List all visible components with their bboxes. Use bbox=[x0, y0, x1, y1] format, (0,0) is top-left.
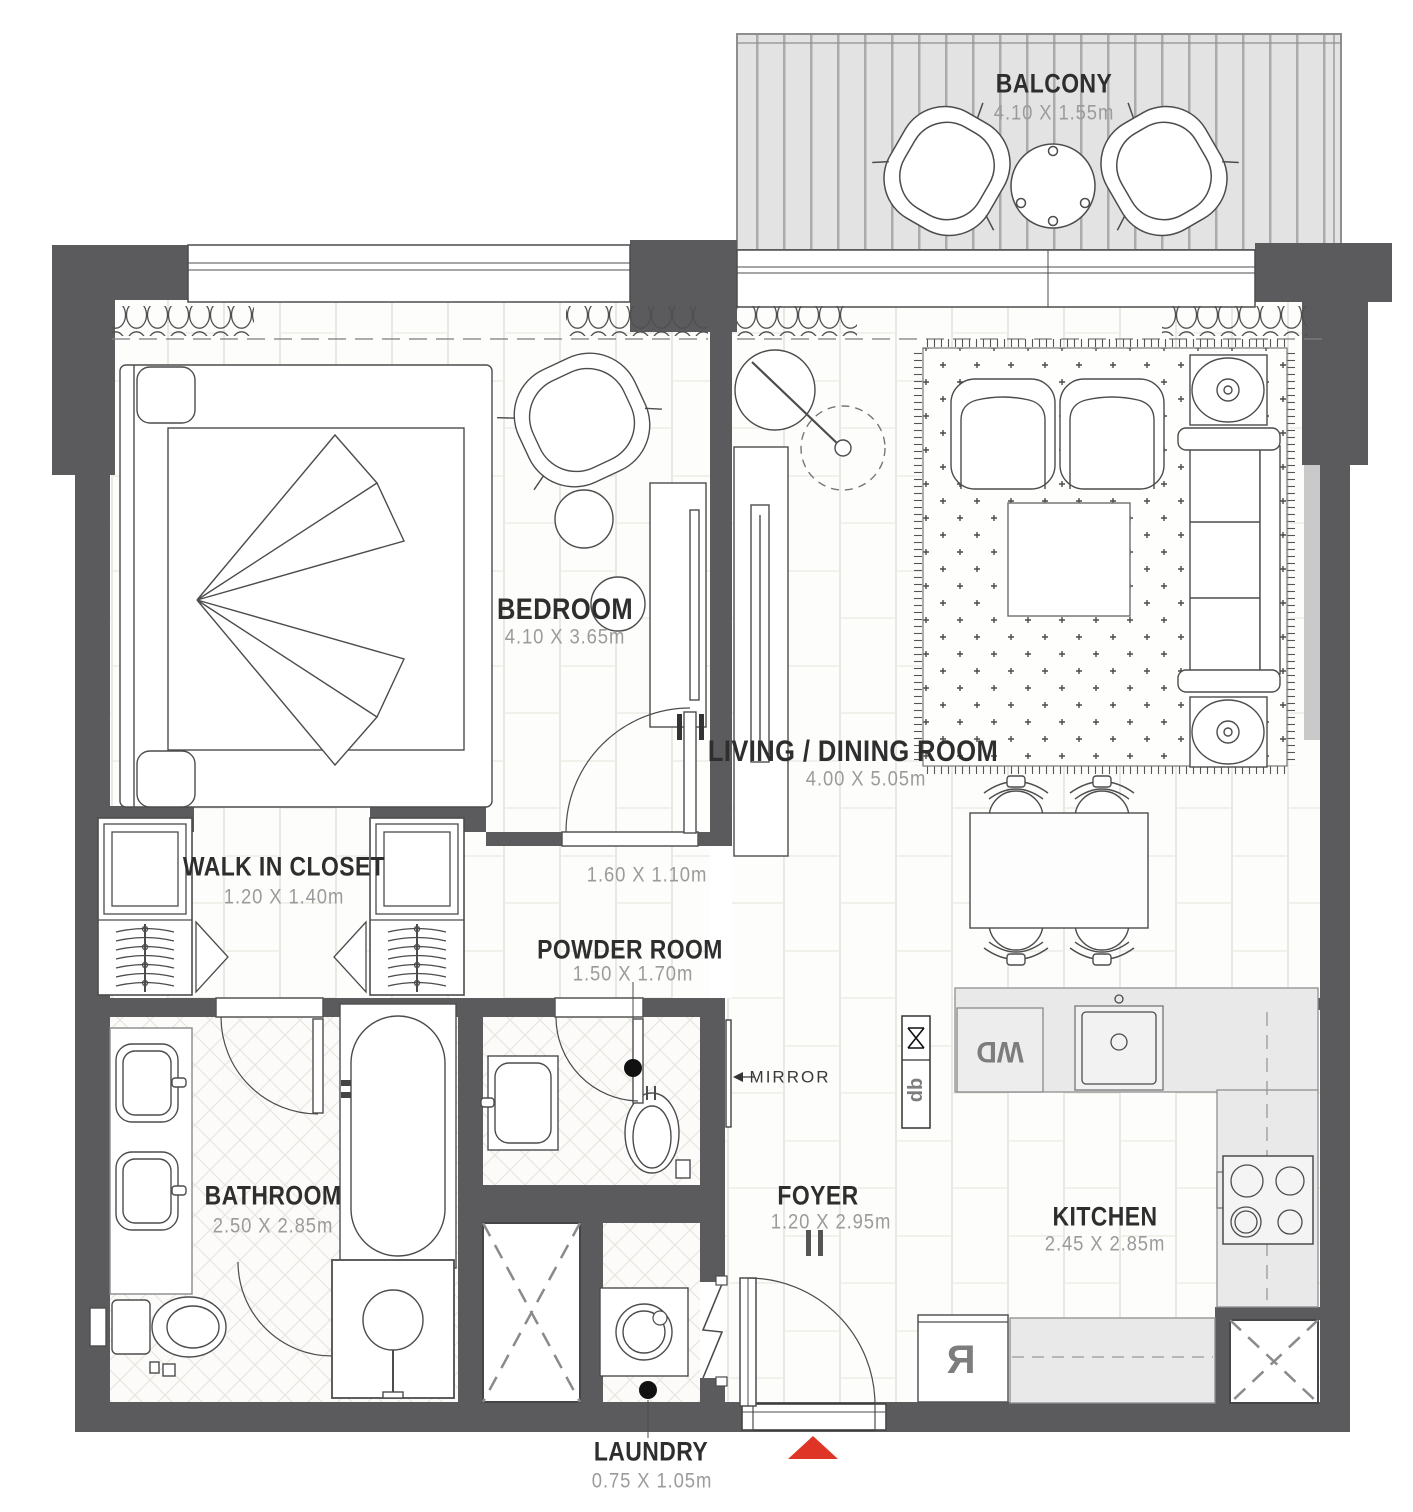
mirror bbox=[726, 1020, 731, 1127]
floor-drain bbox=[639, 1381, 657, 1399]
distribution-board bbox=[902, 1016, 930, 1128]
distribution-board-label: db bbox=[905, 1078, 927, 1102]
bedroom-window bbox=[188, 245, 630, 302]
door-leaf bbox=[684, 712, 696, 833]
entrance-sill bbox=[742, 1404, 886, 1430]
mirror-label: MIRROR bbox=[750, 1068, 831, 1087]
kitchen-dims: 2.45 X 2.85m bbox=[1045, 1232, 1165, 1255]
foyer-label: FOYER bbox=[777, 1181, 858, 1211]
powder-room-label: POWDER ROOM bbox=[537, 935, 723, 965]
double-bed bbox=[120, 365, 492, 807]
tv-console bbox=[734, 447, 788, 856]
bathroom-dims: 2.50 X 2.85m bbox=[213, 1214, 333, 1237]
refrigerator-label: R bbox=[946, 1338, 975, 1382]
curtain-coil bbox=[1162, 306, 1307, 336]
laundry-label: LAUNDRY bbox=[594, 1437, 708, 1467]
door-sill bbox=[555, 998, 643, 1017]
wall bbox=[486, 832, 562, 846]
laundry-dims: 0.75 X 1.05m bbox=[592, 1469, 712, 1492]
bathroom-sink bbox=[116, 1152, 186, 1230]
wall bbox=[1320, 302, 1350, 1432]
door-sill bbox=[216, 998, 323, 1017]
wardrobe bbox=[370, 818, 464, 995]
balcony-sliding-door bbox=[737, 250, 1255, 307]
wall bbox=[458, 1017, 483, 1432]
balcony-table bbox=[1011, 144, 1095, 228]
bedroom-dims: 4.10 X 3.65m bbox=[505, 625, 625, 648]
foyer-dims: 1.20 X 2.95m bbox=[771, 1210, 891, 1233]
washer-dryer-label: WD bbox=[976, 1035, 1023, 1068]
bathtub bbox=[340, 1004, 456, 1268]
living-dining-label: LIVING / DINING ROOM bbox=[708, 734, 998, 767]
living-armchair bbox=[1060, 379, 1164, 489]
hall-dims: 1.60 X 1.10m bbox=[587, 863, 707, 886]
door-sill bbox=[562, 832, 698, 846]
entrance-arrow-icon bbox=[788, 1436, 838, 1459]
powder-sink bbox=[481, 1056, 558, 1150]
wall bbox=[1215, 1307, 1350, 1320]
wall bbox=[52, 245, 115, 475]
kitchen-sink bbox=[1075, 995, 1163, 1090]
wall bbox=[75, 1402, 1350, 1432]
bedroom-label: BEDROOM bbox=[497, 592, 633, 625]
living-armchair bbox=[951, 379, 1055, 489]
sofa bbox=[1178, 428, 1280, 692]
bathroom-label: BATHROOM bbox=[205, 1181, 342, 1211]
curtain-coil bbox=[112, 306, 254, 336]
curtain-coil bbox=[737, 306, 857, 336]
bathroom-sink bbox=[116, 1044, 186, 1122]
wall bbox=[698, 832, 710, 846]
plant-side-table bbox=[1190, 355, 1267, 425]
door-leaf bbox=[313, 1019, 323, 1113]
curtain-coil bbox=[566, 306, 708, 336]
wall bbox=[483, 1185, 725, 1223]
bedroom-dresser bbox=[650, 483, 706, 727]
floor-drain bbox=[624, 1059, 642, 1077]
walk-in-closet-dims: 1.20 X 1.40m bbox=[224, 885, 344, 908]
flush-plate bbox=[90, 1308, 106, 1346]
floor-plan: BALCONY 4.10 X 1.55m BEDROOM 4.10 X 3.65… bbox=[0, 0, 1413, 1512]
pouf-table bbox=[555, 490, 613, 548]
balcony-dims: 4.10 X 1.55m bbox=[994, 101, 1114, 124]
coffee-table bbox=[1008, 503, 1130, 616]
wall bbox=[700, 1017, 725, 1282]
balcony-zone bbox=[737, 34, 1341, 259]
wall-light bbox=[1304, 465, 1320, 740]
pillow bbox=[137, 367, 195, 423]
laundry-bifold-door bbox=[703, 1284, 722, 1378]
stove bbox=[1217, 1156, 1313, 1244]
pillow bbox=[137, 751, 195, 807]
washing-machine bbox=[600, 1288, 688, 1376]
dining-table bbox=[970, 813, 1148, 928]
walk-in-closet-label: WALK IN CLOSET bbox=[183, 852, 385, 882]
powder-room-dims: 1.50 X 1.70m bbox=[573, 962, 693, 985]
wall bbox=[1215, 1307, 1230, 1403]
kitchen-label: KITCHEN bbox=[1053, 1202, 1158, 1232]
living-dining-dims: 4.00 X 5.05m bbox=[806, 767, 926, 790]
kitchen-counter-bottom bbox=[1010, 1318, 1215, 1403]
balcony-label: BALCONY bbox=[996, 69, 1112, 99]
floor-plan-drawing: BALCONY 4.10 X 1.55m BEDROOM 4.10 X 3.65… bbox=[0, 0, 1413, 1512]
wardrobe bbox=[98, 818, 192, 995]
wall bbox=[1255, 243, 1392, 302]
plant-side-table bbox=[1190, 697, 1267, 767]
